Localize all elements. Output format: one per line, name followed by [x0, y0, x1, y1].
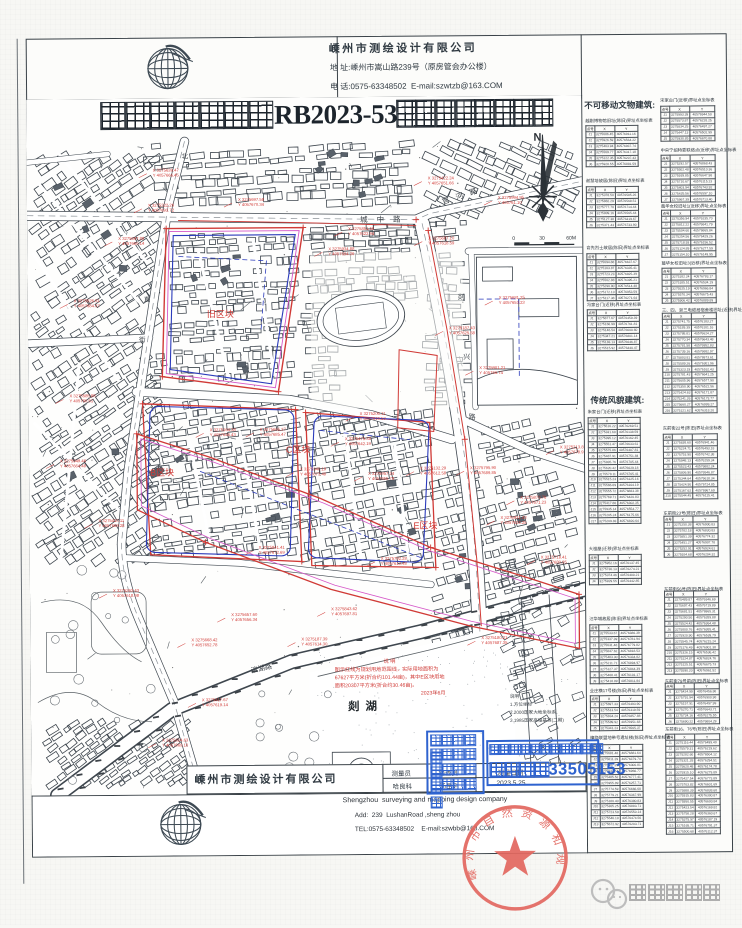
svg-text:Y 405766.74: Y 405766.74	[479, 370, 503, 375]
svg-text:Y 4057652.78: Y 4057652.78	[191, 642, 218, 647]
svg-text:路: 路	[469, 412, 476, 421]
svg-text:旧区块: 旧区块	[207, 308, 234, 319]
svg-text:Y 4057624.25: Y 4057624.25	[500, 520, 527, 525]
svg-text:城中路: 城中路	[360, 214, 410, 224]
svg-text:Y 4057651.66: Y 4057651.66	[428, 180, 455, 185]
svg-text:Y 405761.10: Y 405761.10	[498, 200, 522, 205]
svg-text:Y 4057619.14: Y 4057619.14	[202, 702, 229, 707]
svg-text:直: 直	[144, 295, 151, 304]
svg-text:Y 4057613.48: Y 4057613.48	[381, 561, 408, 566]
svg-text:Y 4057697.81: Y 4057697.81	[331, 611, 358, 616]
svg-text:说 明: 说 明	[384, 657, 396, 665]
svg-text:Y 4057689.85: Y 4057689.85	[470, 470, 497, 475]
svg-text:Y 4057659.28: Y 4057659.28	[98, 523, 125, 528]
svg-text:Y 4057684.27: Y 4057684.27	[74, 303, 101, 308]
svg-text:Y 4057673.48: Y 4057673.48	[300, 471, 327, 476]
svg-text:60M: 60M	[566, 235, 576, 241]
svg-text:街: 街	[139, 335, 146, 344]
svg-text:Y 4057622.94: Y 4057622.94	[348, 231, 375, 236]
svg-text:Y 4057672.69: Y 4057672.69	[259, 550, 286, 555]
svg-text:Y 4057618.59: Y 4057618.59	[428, 240, 455, 245]
svg-text:Y 4057671.23: Y 4057671.23	[520, 500, 547, 505]
svg-text:Y 4057653.23: Y 4057653.23	[499, 300, 526, 305]
svg-text:剡: 剡	[458, 292, 465, 301]
svg-text:Y 4057669.10: Y 4057669.10	[162, 742, 189, 747]
svg-text:兴: 兴	[463, 352, 470, 361]
svg-text:Y 4057618.98: Y 4057618.98	[113, 593, 140, 598]
svg-text:C区块: C区块	[286, 443, 311, 454]
svg-text:Y 4057612.58: Y 4057612.58	[420, 470, 447, 475]
svg-text:Y 4057650.14: Y 4057650.14	[118, 241, 145, 246]
svg-text:北: 北	[182, 152, 189, 160]
svg-text:Y 4057656.34: Y 4057656.34	[231, 617, 258, 622]
svg-text:Y 4057625.68: Y 4057625.68	[449, 330, 476, 335]
svg-text:30: 30	[539, 236, 545, 242]
svg-text:Y 4057680.95: Y 4057680.95	[541, 559, 568, 564]
svg-text:剡湖: 剡湖	[347, 699, 383, 713]
svg-text:0: 0	[512, 236, 515, 242]
svg-text:Y 4057642.19: Y 4057642.19	[345, 441, 372, 446]
svg-text:Y 4057694.26: Y 4057694.26	[328, 251, 355, 256]
svg-text:Y 4057655.78: Y 4057655.78	[368, 476, 395, 481]
svg-text:Y 4057670.34: Y 4057670.34	[238, 202, 265, 207]
svg-text:E区块: E区块	[413, 519, 437, 530]
svg-text:Y 405760.51: Y 405760.51	[69, 398, 93, 403]
svg-text:Y 4057693.72: Y 4057693.72	[148, 208, 175, 213]
svg-text:N: N	[533, 132, 541, 144]
svg-text:Y 4057685.47: Y 4057685.47	[260, 432, 287, 437]
svg-text:Y 4057687.35: Y 4057687.35	[481, 640, 508, 645]
svg-text:Y 4057646.43: Y 4057646.43	[210, 432, 237, 437]
svg-text:2023年6月: 2023年6月	[421, 688, 446, 696]
svg-text:Y 4057614.30: Y 4057614.30	[301, 641, 328, 646]
svg-text:Y 4057666.45: Y 4057666.45	[153, 172, 180, 177]
svg-text:Y 4057664.48: Y 4057664.48	[60, 463, 87, 468]
svg-text:Y 4057619.53: Y 4057619.53	[360, 416, 387, 421]
svg-text:B区块: B区块	[150, 467, 174, 478]
svg-text:Y 4057678.91: Y 4057678.91	[560, 449, 587, 454]
